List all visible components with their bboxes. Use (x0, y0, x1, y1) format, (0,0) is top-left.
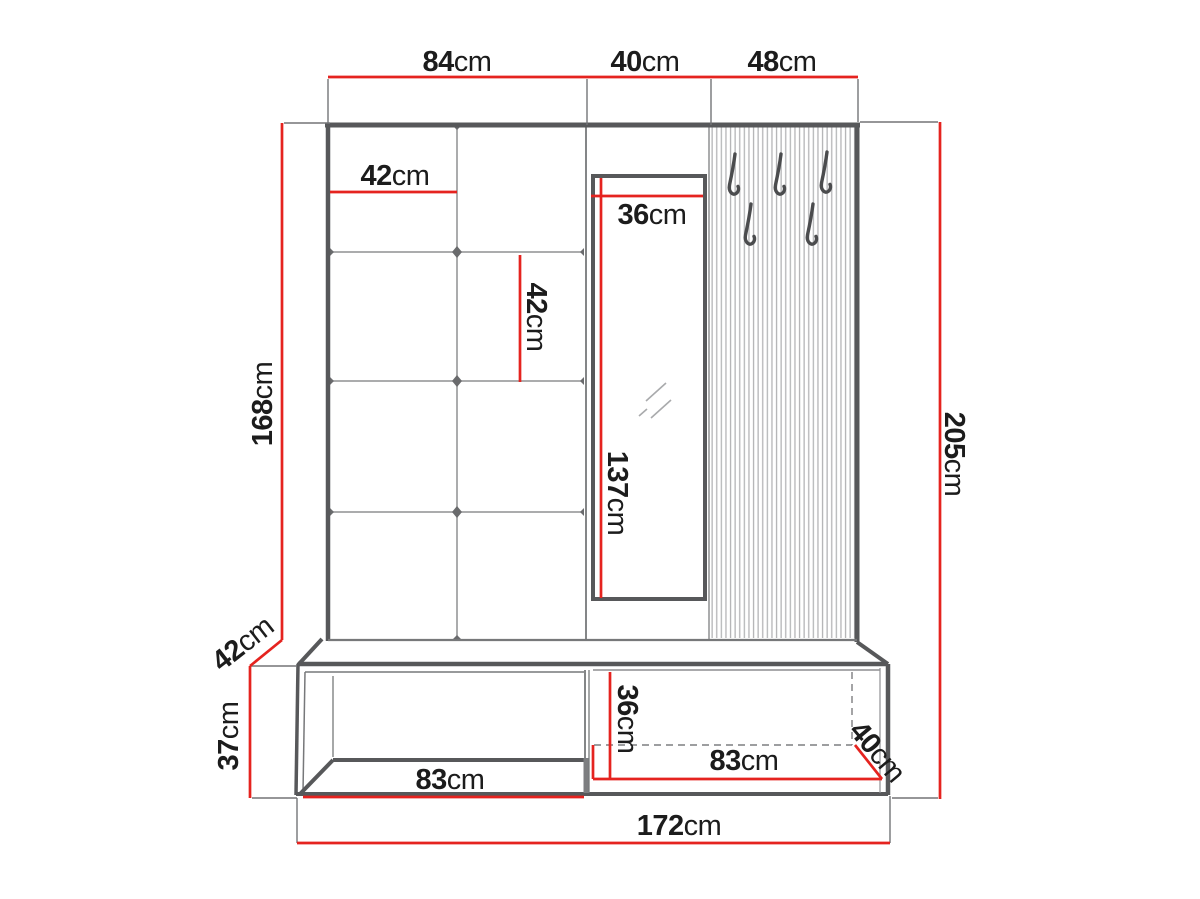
dim-label-bench-height: 37cm (213, 702, 245, 771)
dim-label-top-section-right: 48cm (748, 46, 817, 78)
wardrobe-structure (296, 123, 888, 795)
dim-label-mirror-height: 137cm (601, 451, 633, 536)
dim-label-bench-top-depth: 42cm (206, 610, 280, 678)
dim-label-total-height: 205cm (938, 412, 970, 497)
wardrobe-dimension-diagram: 84cm 40cm 48cm 42cm 42cm 36cm 137cm 168c… (0, 0, 1200, 899)
dim-label-panel-height: 168cm (247, 362, 279, 447)
dim-label-total-width: 172cm (637, 810, 722, 842)
upholstered-panel (330, 125, 584, 640)
dim-label-top-section-left: 84cm (423, 46, 492, 78)
mirror (593, 176, 705, 599)
dim-label-drawer-width: 83cm (710, 745, 779, 777)
dim-label-panel-square-height: 42cm (520, 283, 552, 352)
dim-label-niche-width: 83cm (416, 764, 485, 796)
dim-label-panel-square-width: 42cm (361, 160, 430, 192)
dim-label-drawer-height: 36cm (611, 685, 643, 754)
diagram-canvas: 84cm 40cm 48cm 42cm 42cm 36cm 137cm 168c… (0, 0, 1200, 899)
slat-panel (709, 125, 855, 640)
dim-label-top-section-middle: 40cm (611, 46, 680, 78)
dim-label-mirror-width: 36cm (618, 199, 687, 231)
